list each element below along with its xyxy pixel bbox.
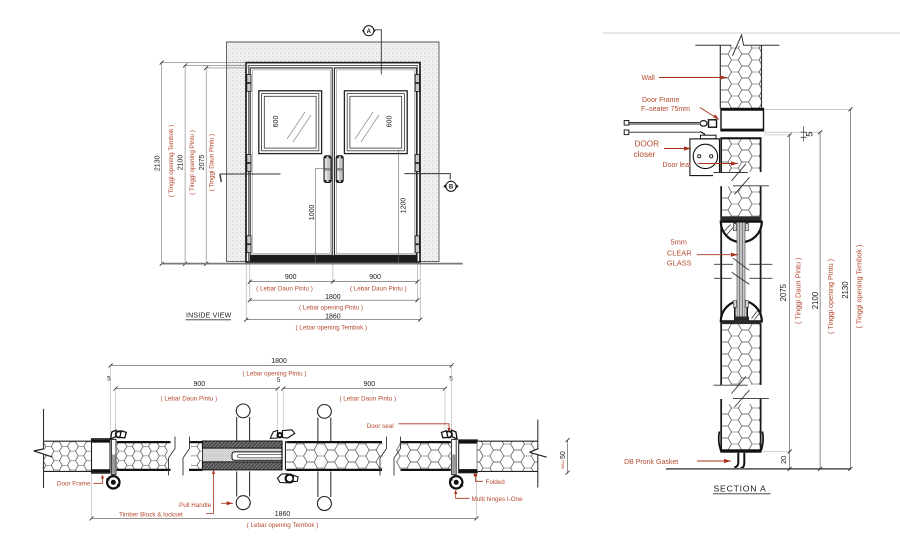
svg-text:( Tinggi Daun Pintu ): ( Tinggi Daun Pintu ) (208, 134, 215, 191)
svg-text:20: 20 (779, 456, 788, 464)
svg-text:( Lebar opening Tembok ): ( Lebar opening Tembok ) (295, 324, 367, 331)
svg-text:GLASS: GLASS (667, 259, 692, 268)
svg-text:1860: 1860 (275, 511, 291, 518)
svg-text:5mm: 5mm (671, 238, 687, 247)
svg-text:( Tinggi opening Tembok ): ( Tinggi opening Tembok ) (168, 125, 175, 197)
svg-text:Wall: Wall (642, 75, 656, 82)
svg-text:2100: 2100 (178, 155, 185, 171)
svg-text:2100: 2100 (811, 291, 820, 309)
svg-text:SECTION A: SECTION A (714, 483, 767, 493)
svg-text:F–seater 75mm: F–seater 75mm (641, 106, 690, 113)
svg-text:1800: 1800 (271, 358, 287, 365)
svg-text:( Lebar Daun Pintu ): ( Lebar Daun Pintu ) (350, 286, 407, 293)
svg-text:5: 5 (277, 377, 281, 384)
svg-text:DOOR: DOOR (635, 140, 660, 149)
svg-text:600: 600 (387, 116, 394, 128)
svg-text:A: A (367, 29, 372, 35)
svg-text:CLEAR: CLEAR (667, 249, 692, 258)
svg-text:Door seal: Door seal (367, 423, 394, 430)
svg-text:( Lebar Daun Pintu ): ( Lebar Daun Pintu ) (161, 396, 218, 403)
svg-text:1000: 1000 (309, 205, 316, 221)
svg-text:900: 900 (193, 381, 205, 388)
svg-text:( Tinggi opening Pintu ): ( Tinggi opening Pintu ) (826, 259, 835, 334)
svg-text:1200: 1200 (401, 198, 408, 214)
svg-text:INSIDE VIEW: INSIDE VIEW (186, 313, 232, 320)
svg-text:( Lebar opening Pintu ): ( Lebar opening Pintu ) (242, 371, 306, 378)
svg-text:2130: 2130 (841, 281, 850, 299)
svg-text:1800: 1800 (325, 294, 341, 301)
svg-text:Timber Block & lockset: Timber Block & lockset (119, 512, 183, 519)
svg-text:Door Frame: Door Frame (57, 481, 91, 488)
svg-text:Folded: Folded (486, 479, 506, 486)
svg-text:900: 900 (369, 274, 381, 281)
svg-text:5: 5 (449, 376, 453, 383)
svg-text:DB Pronk Gasket: DB Pronk Gasket (624, 459, 678, 466)
svg-text:2075: 2075 (199, 155, 206, 171)
svg-text:2130: 2130 (155, 155, 162, 171)
svg-text:900: 900 (363, 381, 375, 388)
svg-text:WALL: WALL (561, 459, 565, 469)
svg-text:1860: 1860 (325, 313, 341, 320)
svg-text:2075: 2075 (779, 283, 788, 301)
svg-text:( Lebar Daun Pintu ): ( Lebar Daun Pintu ) (256, 286, 313, 293)
svg-text:closer: closer (634, 150, 656, 159)
svg-text:50: 50 (560, 451, 567, 459)
svg-text:Door Frame: Door Frame (642, 97, 679, 104)
svg-text:( Tinggi opening Tembok ): ( Tinggi opening Tembok ) (855, 245, 864, 329)
svg-text:B: B (449, 185, 454, 191)
svg-text:5: 5 (805, 132, 815, 137)
svg-text:Door leaf: Door leaf (663, 162, 691, 169)
svg-text:( Lebar opening Tembok ): ( Lebar opening Tembok ) (247, 522, 319, 529)
svg-text:( Lebar Daun Pintu ): ( Lebar Daun Pintu ) (339, 396, 396, 403)
svg-text:Pull Handle: Pull Handle (179, 502, 212, 509)
svg-text:900: 900 (285, 274, 297, 281)
svg-text:Multi hinges I-One: Multi hinges I-One (472, 496, 524, 503)
svg-text:600: 600 (273, 116, 280, 128)
svg-text:( Tinggi Daun Pintu ): ( Tinggi Daun Pintu ) (793, 257, 802, 324)
svg-text:( Tinggi opening Pintu ): ( Tinggi opening Pintu ) (189, 130, 196, 195)
svg-text:( Lebar opening Pintu ): ( Lebar opening Pintu ) (299, 304, 363, 311)
